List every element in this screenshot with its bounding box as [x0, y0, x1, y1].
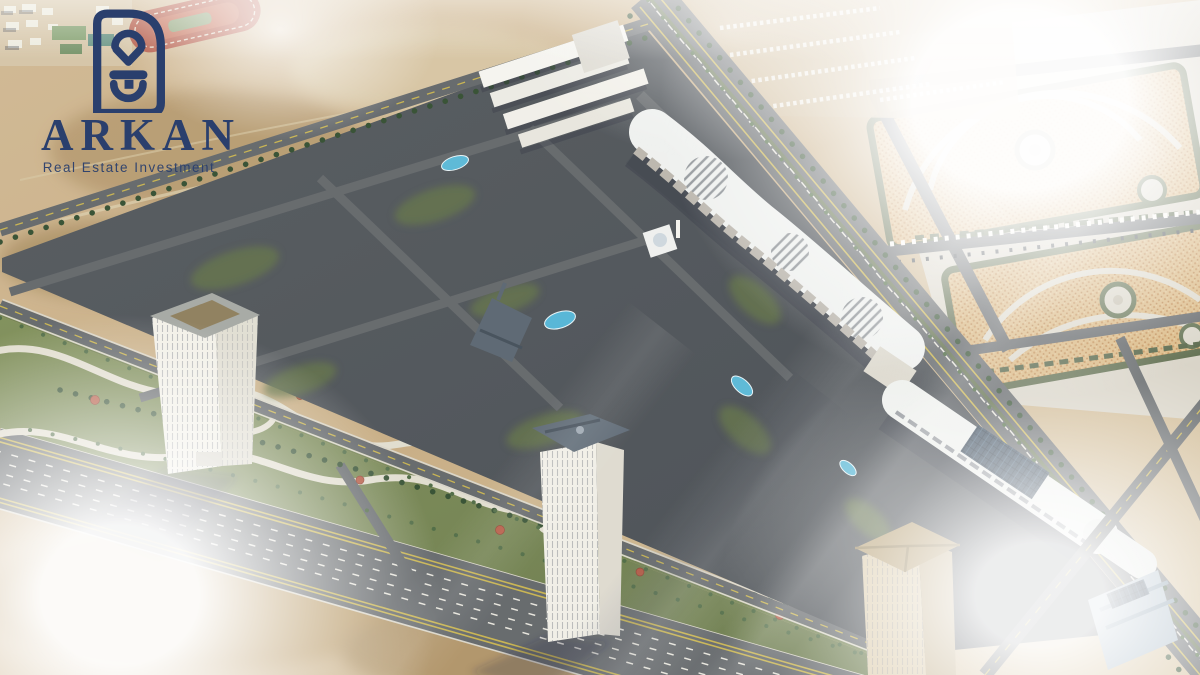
- render-canvas: ARKAN Real Estate Investment: [0, 0, 1200, 675]
- brand-logo: ARKAN Real Estate Investment: [34, 6, 224, 175]
- tower-south-tan: [855, 522, 960, 675]
- arkan-logo-icon: [86, 6, 172, 113]
- brand-name: ARKAN: [34, 113, 224, 158]
- brand-tagline: Real Estate Investment: [34, 160, 224, 175]
